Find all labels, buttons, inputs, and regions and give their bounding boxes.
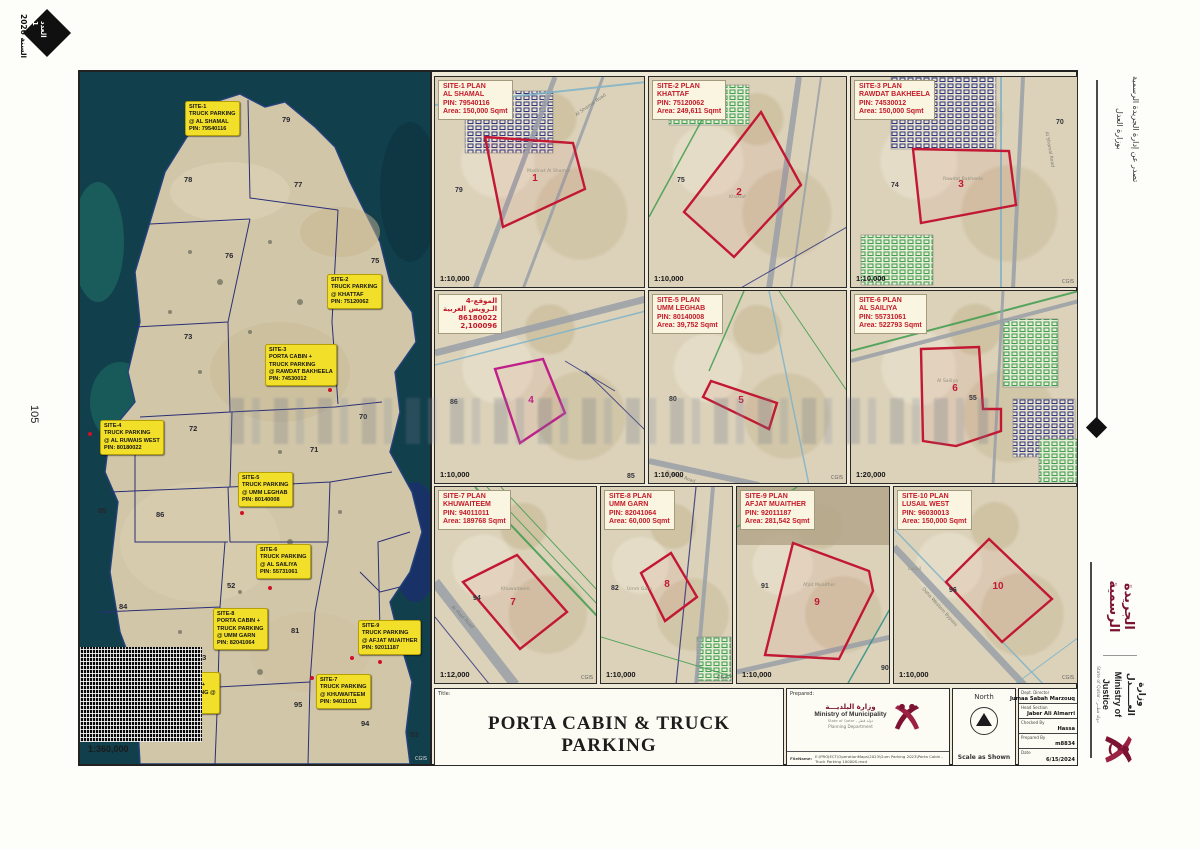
site-callout: SITE-2TRUCK PARKING@ KHATTAFPIN: 7512006… bbox=[327, 274, 382, 309]
mom-arabic: وزارة البلديـــة bbox=[814, 703, 886, 712]
plan-place-label: Lusail bbox=[908, 567, 921, 572]
plan-zone-number: 79 bbox=[455, 187, 463, 194]
signature-row: Prepared Bym8834 bbox=[1019, 734, 1077, 749]
plan-number: 6 bbox=[952, 383, 958, 394]
qatar-emblem-icon bbox=[1099, 733, 1141, 766]
map-zone-number: 86 bbox=[156, 510, 164, 519]
plan-title-box: SITE-8 PLANUMM GARNPIN: 82041064Area: 60… bbox=[604, 490, 675, 530]
plan-zone-number: 82 bbox=[611, 585, 619, 592]
site-plan-panel: 4الموقع-4الـرويس الغربية861800222,100096… bbox=[434, 290, 645, 484]
site-callout: SITE-6TRUCK PARKING@ AL SAILIYAPIN: 5573… bbox=[256, 544, 311, 579]
plan-title-box: SITE-10 PLANLUSAIL WESTPIN: 96030013Area… bbox=[897, 490, 972, 530]
titleblock-signatures-table: Dept. DirectorJumaa Sabah MarzouqHead Se… bbox=[1018, 688, 1078, 766]
signature-row: Checked ByHassa bbox=[1019, 719, 1077, 734]
site-callout: SITE-7TRUCK PARKING@ KHUWAITEEMPIN: 9401… bbox=[316, 674, 371, 709]
map-plate: 79787776757372717085865284838195949653 S… bbox=[78, 70, 1078, 766]
map-zone-number: 94 bbox=[361, 719, 369, 728]
titleblock-prepared-box: Prepared: وزارة البلديـــة Ministry of M… bbox=[786, 688, 950, 766]
plan-scale: 1:20,000 bbox=[856, 470, 886, 479]
key-map-credit: CGIS bbox=[415, 756, 427, 762]
site-plan-panel: 6SITE-6 PLANAL SAILIYAPIN: 55731061Area:… bbox=[850, 290, 1078, 484]
moj-arabic: وزارة العــــــدل bbox=[1123, 664, 1146, 726]
site-plan-panel: 10SITE-10 PLANLUSAIL WESTPIN: 96030013Ar… bbox=[893, 486, 1078, 684]
plan-zone-number: 90 bbox=[881, 665, 889, 672]
map-zone-number: 77 bbox=[294, 180, 302, 189]
divider bbox=[1103, 655, 1137, 656]
plan-place-label: Umm Garn bbox=[627, 587, 652, 592]
signature-row-label: Head Section bbox=[1021, 705, 1048, 710]
moj-state-line: State of Qatar - دولة قطــر bbox=[1094, 664, 1100, 726]
map-zone-number: 70 bbox=[359, 412, 367, 421]
site-callout: SITE-4TRUCK PARKING@ AL RUWAIS WESTPIN: … bbox=[100, 420, 164, 455]
redaction-noise-block bbox=[80, 647, 202, 742]
scale-note: Scale as Shown bbox=[953, 754, 1015, 761]
plan-title-box: SITE-7 PLANKHUWAITEEMPIN: 94011011Area: … bbox=[438, 490, 511, 530]
gazette-page: السنة 2026 العدد1 105 تصدر عن إدارة الجر… bbox=[0, 0, 1200, 849]
signature-row-label: Date bbox=[1021, 750, 1031, 755]
plan-place-label: Al Sailiya bbox=[937, 379, 958, 384]
plan-place-label: Khuwaiteem bbox=[501, 587, 530, 592]
key-map-scale: 1:360,000 bbox=[88, 744, 129, 754]
signature-row-label: Dept. Director bbox=[1021, 690, 1049, 695]
plan-title-box: SITE-2 PLANKHATTAFPIN: 75120062Area: 249… bbox=[652, 80, 726, 120]
filename-label: FileName: bbox=[790, 756, 812, 761]
map-zone-number: 72 bbox=[189, 424, 197, 433]
plan-title-box: SITE-1 PLANAL SHAMALPIN: 79540116Area: 1… bbox=[438, 80, 513, 120]
issue-badge-diamond bbox=[23, 9, 71, 57]
site-plan-panel: 5SITE-5 PLANUMM LEGHABPIN: 80140008Area:… bbox=[648, 290, 847, 484]
plan-credit: CGIS bbox=[717, 675, 729, 681]
map-zone-number: 53 bbox=[410, 730, 418, 739]
signature-row-value: m8834 bbox=[1055, 741, 1075, 747]
north-arrow-triangle bbox=[976, 713, 992, 726]
plan-number: 4 bbox=[528, 395, 534, 406]
plan-scale: 1:10,000 bbox=[440, 470, 470, 479]
plan-place-label: Afjat Muaither bbox=[803, 583, 835, 588]
site-callout: SITE-8PORTA CABIN +TRUCK PARKING@ UMM GA… bbox=[213, 608, 268, 650]
right-bottom-rule bbox=[1090, 562, 1092, 758]
signature-row-label: Checked By bbox=[1021, 720, 1045, 725]
site-plan-panel: 1SITE-1 PLANAL SHAMALPIN: 79540116Area: … bbox=[434, 76, 645, 288]
ministry-of-justice-block: الجريدة الرسمية وزارة العــــــدل Minist… bbox=[1094, 566, 1146, 766]
qatar-key-map: 79787776757372717085865284838195949653 S… bbox=[80, 72, 432, 764]
plan-number: 9 bbox=[814, 597, 820, 608]
right-margin-rule bbox=[1096, 80, 1098, 418]
plan-number: 1 bbox=[532, 173, 538, 184]
mom-department: Planning Department bbox=[814, 724, 886, 729]
plan-place-label: Madinat Al Shamal bbox=[527, 169, 570, 174]
titleblock-north-box: North Scale as Shown bbox=[952, 688, 1016, 766]
page-number: 105 bbox=[28, 405, 40, 423]
title-label: Title: bbox=[438, 691, 450, 697]
plan-title-box: SITE-5 PLANUMM LEGHABPIN: 80140008Area: … bbox=[652, 294, 723, 334]
gazette-name: الجريدة الرسمية bbox=[1105, 566, 1135, 647]
issued-by-line1: تصدر عن إدارة الجريدة الرسمية bbox=[1131, 76, 1140, 182]
map-zone-number: 78 bbox=[184, 175, 192, 184]
site-callout: SITE-9TRUCK PARKING@ AFJAT MUAITHERPIN: … bbox=[358, 620, 421, 655]
plan-scale: 1:10,000 bbox=[440, 274, 470, 283]
signature-row-value: Jaber Ali Almarri bbox=[1027, 711, 1075, 717]
plan-number: 5 bbox=[738, 395, 744, 406]
plan-place-label: Rawdat Bakheela bbox=[943, 177, 983, 182]
plan-zone-number: 75 bbox=[677, 177, 685, 184]
plan-zone-number: 85 bbox=[627, 473, 635, 480]
map-zone-number: 75 bbox=[371, 256, 379, 265]
map-zone-number: 79 bbox=[282, 115, 290, 124]
map-zone-number: 84 bbox=[119, 602, 127, 611]
plan-zone-number: 74 bbox=[891, 182, 899, 189]
signature-row: Head SectionJaber Ali Almarri bbox=[1019, 704, 1077, 719]
plan-credit: CGIS bbox=[581, 675, 593, 681]
ministry-of-municipality-block: وزارة البلديـــة Ministry of Municipalit… bbox=[787, 701, 949, 731]
plan-zone-number: 80 bbox=[669, 396, 677, 403]
signature-row: Date6/15/2024 bbox=[1019, 749, 1077, 764]
plan-zone-number: 86 bbox=[450, 399, 458, 406]
plan-zone-number: 70 bbox=[1056, 119, 1064, 126]
plan-title-box: SITE-6 PLANAL SAILIYAPIN: 55731061Area: … bbox=[854, 294, 927, 334]
site-plan-panel: 8SITE-8 PLANUMM GARNPIN: 82041064Area: 6… bbox=[600, 486, 733, 684]
plan-credit: CGIS bbox=[1062, 279, 1074, 285]
plan-zone-number: 96 bbox=[949, 587, 957, 594]
signature-row-value: 6/15/2024 bbox=[1046, 757, 1075, 763]
plan-scale: 1:12,000 bbox=[440, 670, 470, 679]
site-callout: SITE-3PORTA CABIN +TRUCK PARKING@ RAWDAT… bbox=[265, 344, 337, 386]
titleblock-title-box: Title: PORTA CABIN & TRUCK PARKING bbox=[434, 688, 784, 766]
plan-title-box: SITE-9 PLANAFJAT MUAITHERPIN: 92011187Ar… bbox=[740, 490, 815, 530]
right-margin-diamond bbox=[1086, 417, 1107, 438]
map-zone-number: 85 bbox=[98, 506, 106, 515]
map-zone-number: 81 bbox=[291, 626, 299, 635]
filename-value: E:\PROJECT\OperationMaps\2023\Gum Parkin… bbox=[815, 754, 946, 764]
filename-strip: FileName: E:\PROJECT\OperationMaps\2023\… bbox=[787, 751, 949, 765]
plan-zone-number: 91 bbox=[761, 583, 769, 590]
moj-english: Ministry of Justice bbox=[1100, 664, 1123, 726]
plan-title-box: SITE-3 PLANRAWDAT BAKHEELAPIN: 74530012A… bbox=[854, 80, 935, 120]
signature-row-label: Prepared By bbox=[1021, 735, 1045, 740]
prepared-label: Prepared: bbox=[790, 691, 814, 697]
site-callout: SITE-5TRUCK PARKING@ UMM LEGHABPIN: 8014… bbox=[238, 472, 293, 507]
map-zone-number: 71 bbox=[310, 445, 318, 454]
plan-scale: 1:10,000 bbox=[606, 670, 636, 679]
site-plan-panel: 7SITE-7 PLANKHUWAITEEMPIN: 94011011Area:… bbox=[434, 486, 597, 684]
plan-credit: CGIS bbox=[831, 475, 843, 481]
ministry-of-municipality-logo bbox=[892, 701, 922, 731]
map-zone-number: 95 bbox=[294, 700, 302, 709]
signature-row: Dept. DirectorJumaa Sabah Marzouq bbox=[1019, 689, 1077, 704]
site-plan-panel: 2SITE-2 PLANKHATTAFPIN: 75120062Area: 24… bbox=[648, 76, 847, 288]
plan-zone-number: 94 bbox=[473, 595, 481, 602]
map-zone-number: 76 bbox=[225, 251, 233, 260]
plan-number: 8 bbox=[664, 579, 670, 590]
plan-scale: 1:10,000 bbox=[654, 470, 684, 479]
plan-place-label: Khattaf bbox=[729, 195, 746, 200]
site-callout: SITE-1TRUCK PARKING@ AL SHAMALPIN: 79540… bbox=[185, 101, 240, 136]
plan-scale: 1:10,000 bbox=[654, 274, 684, 283]
sheet-title: PORTA CABIN & TRUCK PARKING bbox=[449, 713, 769, 757]
plan-number: 10 bbox=[992, 581, 1004, 592]
site-plan-panel: 9SITE-9 PLANAFJAT MUAITHERPIN: 92011187A… bbox=[736, 486, 890, 684]
plan-scale: 1:10,000 bbox=[899, 670, 929, 679]
signature-row-value: Jumaa Sabah Marzouq bbox=[1010, 696, 1075, 702]
north-label: North bbox=[953, 693, 1015, 701]
plan-zone-number: 55 bbox=[969, 395, 977, 402]
plan-scale: 1:10,000 bbox=[742, 670, 772, 679]
plan-number: 7 bbox=[510, 597, 516, 608]
map-zone-number: 73 bbox=[184, 332, 192, 341]
plan-scale: 1:10,000 bbox=[856, 274, 886, 283]
map-zone-number: 52 bbox=[227, 581, 235, 590]
issued-by-line2: بوزارة العدل bbox=[1115, 108, 1124, 150]
site-plan-panel: 3SITE-3 PLANRAWDAT BAKHEELAPIN: 74530012… bbox=[850, 76, 1078, 288]
plan-title-box: الموقع-4الـرويس الغربية861800222,100096 bbox=[438, 294, 502, 334]
plan-credit: CGIS bbox=[1062, 675, 1074, 681]
signature-row-value: Hassa bbox=[1057, 726, 1075, 732]
